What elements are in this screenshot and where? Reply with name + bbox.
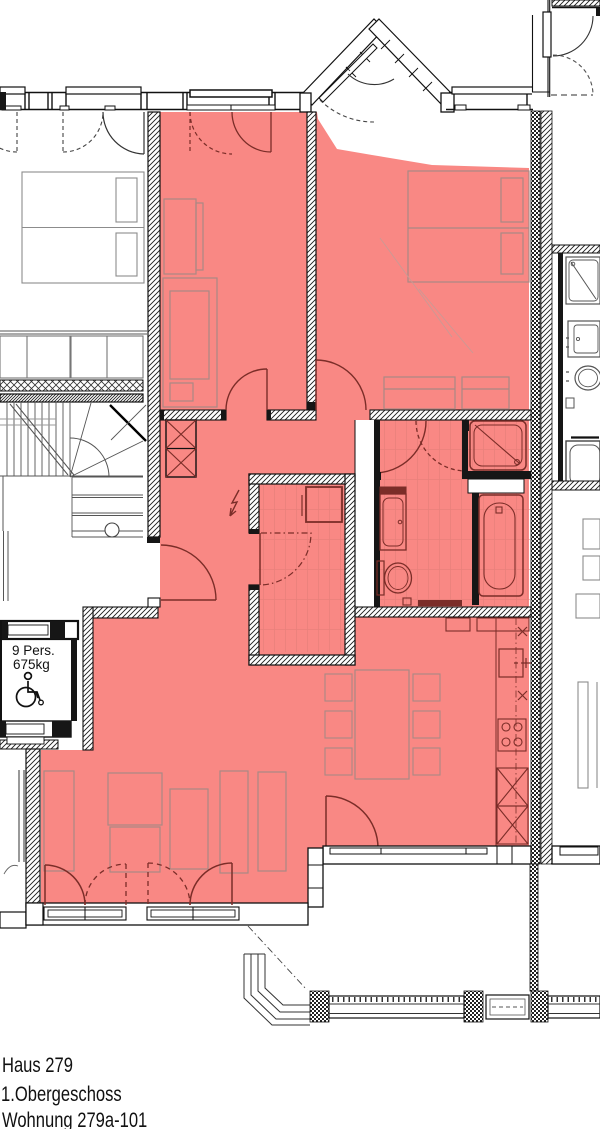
svg-text:Wohnung 279a-101: Wohnung 279a-101: [2, 1109, 147, 1129]
svg-text:675kg: 675kg: [13, 657, 50, 672]
svg-text:1.Obergeschoss: 1.Obergeschoss: [1, 1083, 122, 1106]
svg-text:Haus 279: Haus 279: [2, 1054, 73, 1077]
svg-text:9 Pers.: 9 Pers.: [12, 643, 55, 658]
